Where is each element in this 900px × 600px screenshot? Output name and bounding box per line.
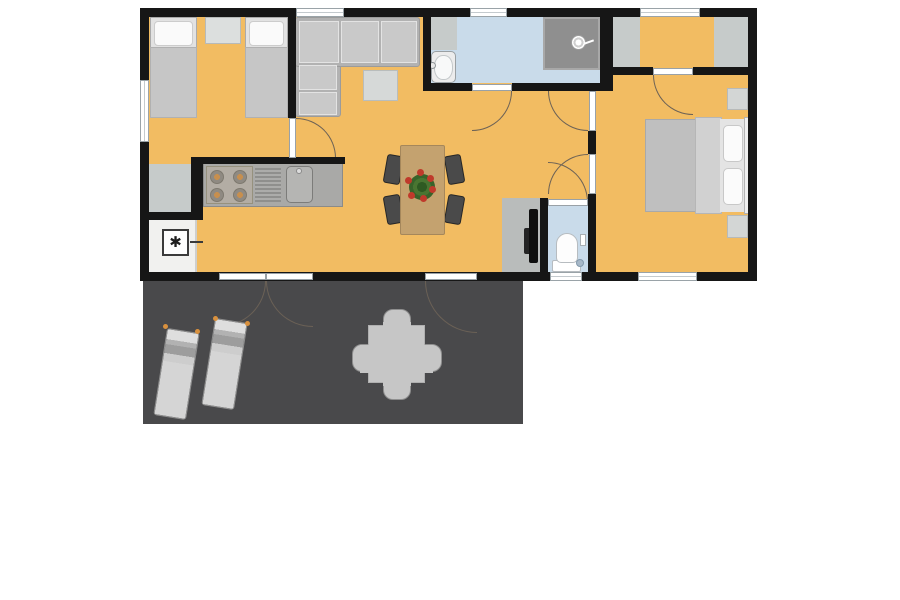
wall-wc-left (540, 198, 548, 272)
tech-room-edge (195, 220, 197, 272)
closet-door (653, 68, 693, 75)
centerpiece-flower (405, 177, 412, 184)
bedroom1-wardrobe (149, 164, 191, 212)
patio-door-right (266, 273, 313, 280)
patio-table-leaf (360, 345, 372, 373)
window (640, 8, 700, 17)
nightstand (727, 215, 748, 238)
deck-door (425, 273, 477, 280)
wall-kitchen (191, 157, 345, 164)
boiler-icon: ✱ (163, 230, 188, 255)
bed-blanket (645, 119, 697, 212)
patio-door-left (219, 273, 266, 280)
lounger-foot (245, 321, 250, 326)
nightstand (205, 17, 241, 44)
bed-throw (695, 117, 722, 214)
centerpiece-flower (408, 192, 415, 199)
bed-pillow (154, 21, 193, 46)
wall-left (140, 8, 149, 281)
bathroom-vanity (431, 17, 457, 50)
coffee-table (363, 70, 398, 101)
tv-screen (529, 209, 538, 263)
bed-pillow (723, 168, 743, 205)
wall-right (748, 8, 757, 281)
lounger-foot (213, 316, 218, 321)
patio-table (368, 325, 425, 383)
sink-faucet (296, 168, 302, 174)
wall-hall-divider-a (588, 131, 596, 154)
wall-bathroom-left (423, 17, 431, 91)
wall-bath-closet (600, 8, 613, 91)
centerpiece-flower (420, 195, 427, 202)
sink-drainboard (255, 168, 281, 202)
window (140, 80, 149, 142)
wc-door (548, 199, 588, 206)
centerpiece-flower (429, 186, 436, 193)
stove-burner (233, 170, 247, 184)
wc-sink (580, 234, 586, 246)
closet-wardrobe-right (714, 17, 748, 67)
boiler-line (190, 241, 203, 243)
patio-table-leaf (383, 322, 411, 332)
bed-pillow (723, 125, 743, 162)
wall-bathroom-bottom-east (512, 83, 609, 91)
wall-wc-right (588, 198, 596, 272)
window (550, 272, 582, 281)
sofa-cushion (381, 21, 417, 63)
window (470, 8, 507, 17)
wall-nook-vertical (191, 157, 203, 220)
wall-bathroom-bottom-west (423, 83, 472, 91)
bedroom2-door-lower (589, 154, 596, 194)
bathtub-basin (434, 55, 453, 80)
sofa-cushion (299, 92, 337, 115)
stove-burner (233, 188, 247, 202)
sofa-cushion (299, 21, 339, 63)
bedroom2-door-upper (589, 91, 596, 131)
patio-table-leaf (383, 376, 411, 386)
toilet-bowl (556, 233, 578, 263)
wall-bedroom1-divider (288, 8, 296, 118)
bed-pillow (249, 21, 284, 46)
window (296, 8, 344, 17)
closet-wardrobe-left (609, 17, 640, 67)
bathroom-door (472, 84, 512, 91)
centerpiece-flower (417, 169, 424, 176)
wall-closet-bottom-east (693, 67, 751, 75)
wall-closet-bottom-west (605, 67, 653, 75)
stove-burner (210, 188, 224, 202)
floor-plan-canvas: ✱ (0, 0, 900, 600)
window (638, 272, 697, 281)
sofa-cushion (299, 65, 337, 90)
lounger-foot (195, 329, 200, 334)
bed-blanket (245, 47, 288, 118)
lounger-foot (163, 324, 168, 329)
patio-table-leaf (421, 345, 433, 373)
wall-nook-horizontal (140, 212, 203, 220)
bedroom1-door (289, 118, 296, 158)
wc-floor-drain (576, 259, 584, 267)
bed-blanket (150, 47, 197, 118)
nightstand (727, 88, 748, 110)
centerpiece-flower (427, 175, 434, 182)
stove-burner (210, 170, 224, 184)
sofa-cushion (341, 21, 379, 63)
